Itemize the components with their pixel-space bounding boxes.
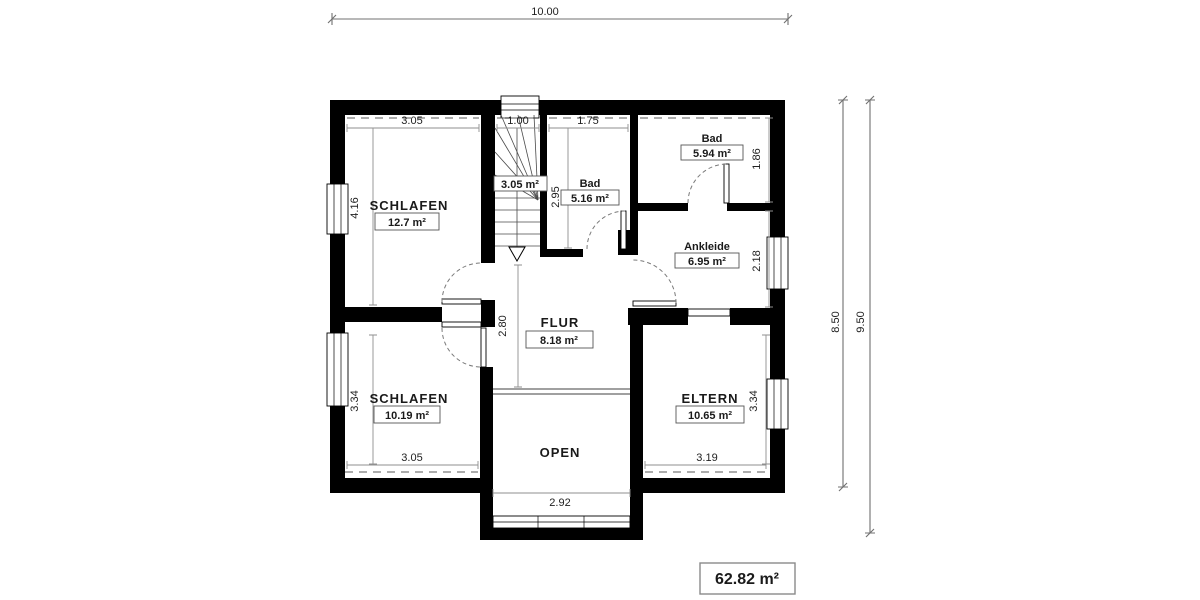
labels: 10.00 8.50 9.50 SCHLAFEN 12.7 m² 3.05 4.… <box>349 6 867 594</box>
dim-main-depth: 8.50 <box>830 311 842 332</box>
stair-down-arrow-icon <box>509 247 525 261</box>
door-leaf-schlafen-top <box>442 299 481 304</box>
room-name-bad-gross: Bad <box>702 133 723 145</box>
wall-schlafen-bottom-right <box>480 367 493 478</box>
floor-plan-canvas: 10.00 8.50 9.50 SCHLAFEN 12.7 m² 3.05 4.… <box>0 0 1200 600</box>
dim-schlafen-top-height: 4.16 <box>349 197 361 218</box>
opening-ankleide-eltern <box>688 309 730 316</box>
wall-top <box>330 100 785 115</box>
window-right-ankleide <box>767 237 788 289</box>
room-name-ankleide: Ankleide <box>684 241 730 253</box>
dim-total-depth: 9.50 <box>855 311 867 332</box>
total-area-value: 62.82 m² <box>715 571 779 588</box>
room-area-bad-gross: 5.94 m² <box>693 148 731 160</box>
room-area-schlafen-top: 12.7 m² <box>388 217 426 229</box>
door-arc-schlafen-top <box>442 263 481 302</box>
window-right-eltern <box>767 379 788 429</box>
wall-stair-pier <box>481 300 495 327</box>
room-area-flur: 8.18 m² <box>540 335 578 347</box>
window-bay-bottom <box>493 516 630 528</box>
wall-bad-gross-bottom-b <box>727 203 770 211</box>
room-name-flur: FLUR <box>541 315 580 330</box>
door-leaf-ankleide <box>633 301 676 306</box>
room-name-schlafen-bottom: SCHLAFEN <box>370 391 449 406</box>
room-name-schlafen-top: SCHLAFEN <box>370 198 449 213</box>
dim-bad-gross-height: 1.86 <box>751 148 763 169</box>
wall-bay-bottom <box>480 528 643 540</box>
room-area-stairs: 3.05 m² <box>501 179 539 191</box>
door-leaf-schlafen-bottom <box>481 328 486 367</box>
room-area-bad-klein: 5.16 m² <box>571 193 609 205</box>
dim-bad-klein-width: 1.75 <box>577 115 598 127</box>
wall-bottom-left <box>330 478 493 493</box>
floor-plan-page: 10.00 8.50 9.50 SCHLAFEN 12.7 m² 3.05 4.… <box>0 0 1200 600</box>
wall-bad-klein-bottom <box>540 249 583 257</box>
wall-stair-left <box>481 100 495 263</box>
door-leaf-bad-gross <box>724 164 729 203</box>
wall-bad-gross-bottom-a <box>638 203 688 211</box>
dim-stairs-width: 1.00 <box>507 115 528 127</box>
wall-bottom-right <box>630 478 785 493</box>
room-name-bad-klein: Bad <box>580 178 601 190</box>
room-area-ankleide: 6.95 m² <box>688 256 726 268</box>
door-arc-ankleide <box>633 260 676 303</box>
door-leaf-bad-klein <box>621 211 626 249</box>
dim-flur-height: 2.80 <box>497 315 509 336</box>
dim-eltern-height: 3.34 <box>748 390 760 411</box>
room-name-eltern: ELTERN <box>681 391 738 406</box>
wall-mid-left <box>330 307 442 322</box>
dim-schlafen-bottom-width: 3.05 <box>401 452 422 464</box>
door-leaf-mid <box>442 322 481 327</box>
door-arc-bad-gross <box>688 164 727 203</box>
wall-right <box>770 100 785 493</box>
dim-overall-width: 10.00 <box>531 6 559 18</box>
window-left-schlafen-top <box>327 184 348 234</box>
dim-schlafen-bottom-height: 3.34 <box>349 390 361 411</box>
dim-ankleide-height: 2.18 <box>751 250 763 271</box>
dim-eltern-width: 3.19 <box>696 452 717 464</box>
wall-eltern-left <box>630 308 643 478</box>
dim-bad-klein-height: 2.95 <box>550 186 562 207</box>
dim-open-width: 2.92 <box>549 497 570 509</box>
room-name-open: OPEN <box>540 445 581 460</box>
wall-left <box>330 100 345 493</box>
dim-schlafen-top-width: 3.05 <box>401 115 422 127</box>
door-arc-schlafen-bottom <box>442 328 481 367</box>
wall-ankleide-bottom-b <box>730 308 770 325</box>
window-left-schlafen-bottom <box>327 333 348 406</box>
room-area-schlafen-bottom: 10.19 m² <box>385 410 429 422</box>
room-area-eltern: 10.65 m² <box>688 410 732 422</box>
